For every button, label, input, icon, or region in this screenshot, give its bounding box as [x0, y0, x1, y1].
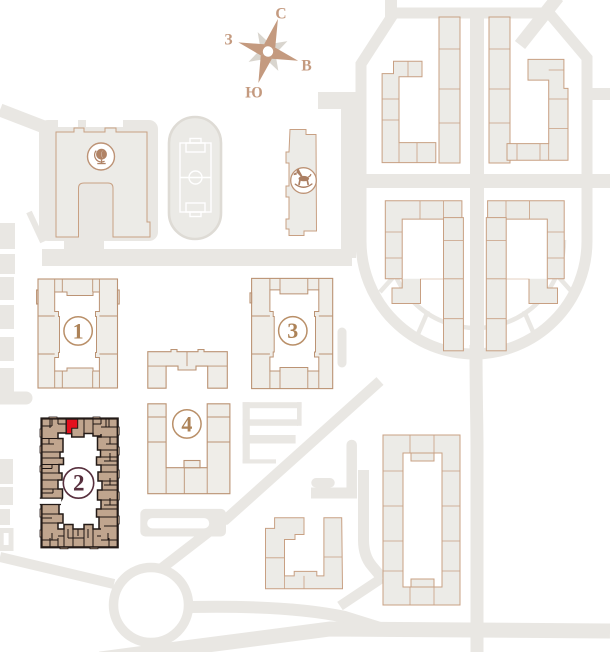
svg-text:2: 2	[73, 471, 85, 496]
svg-text:З: З	[224, 32, 232, 49]
svg-text:1: 1	[73, 318, 84, 343]
svg-text:4: 4	[181, 411, 192, 436]
svg-text:3: 3	[287, 318, 298, 343]
svg-text:Ю: Ю	[245, 85, 262, 102]
svg-text:С: С	[275, 6, 286, 23]
svg-text:В: В	[301, 58, 311, 75]
